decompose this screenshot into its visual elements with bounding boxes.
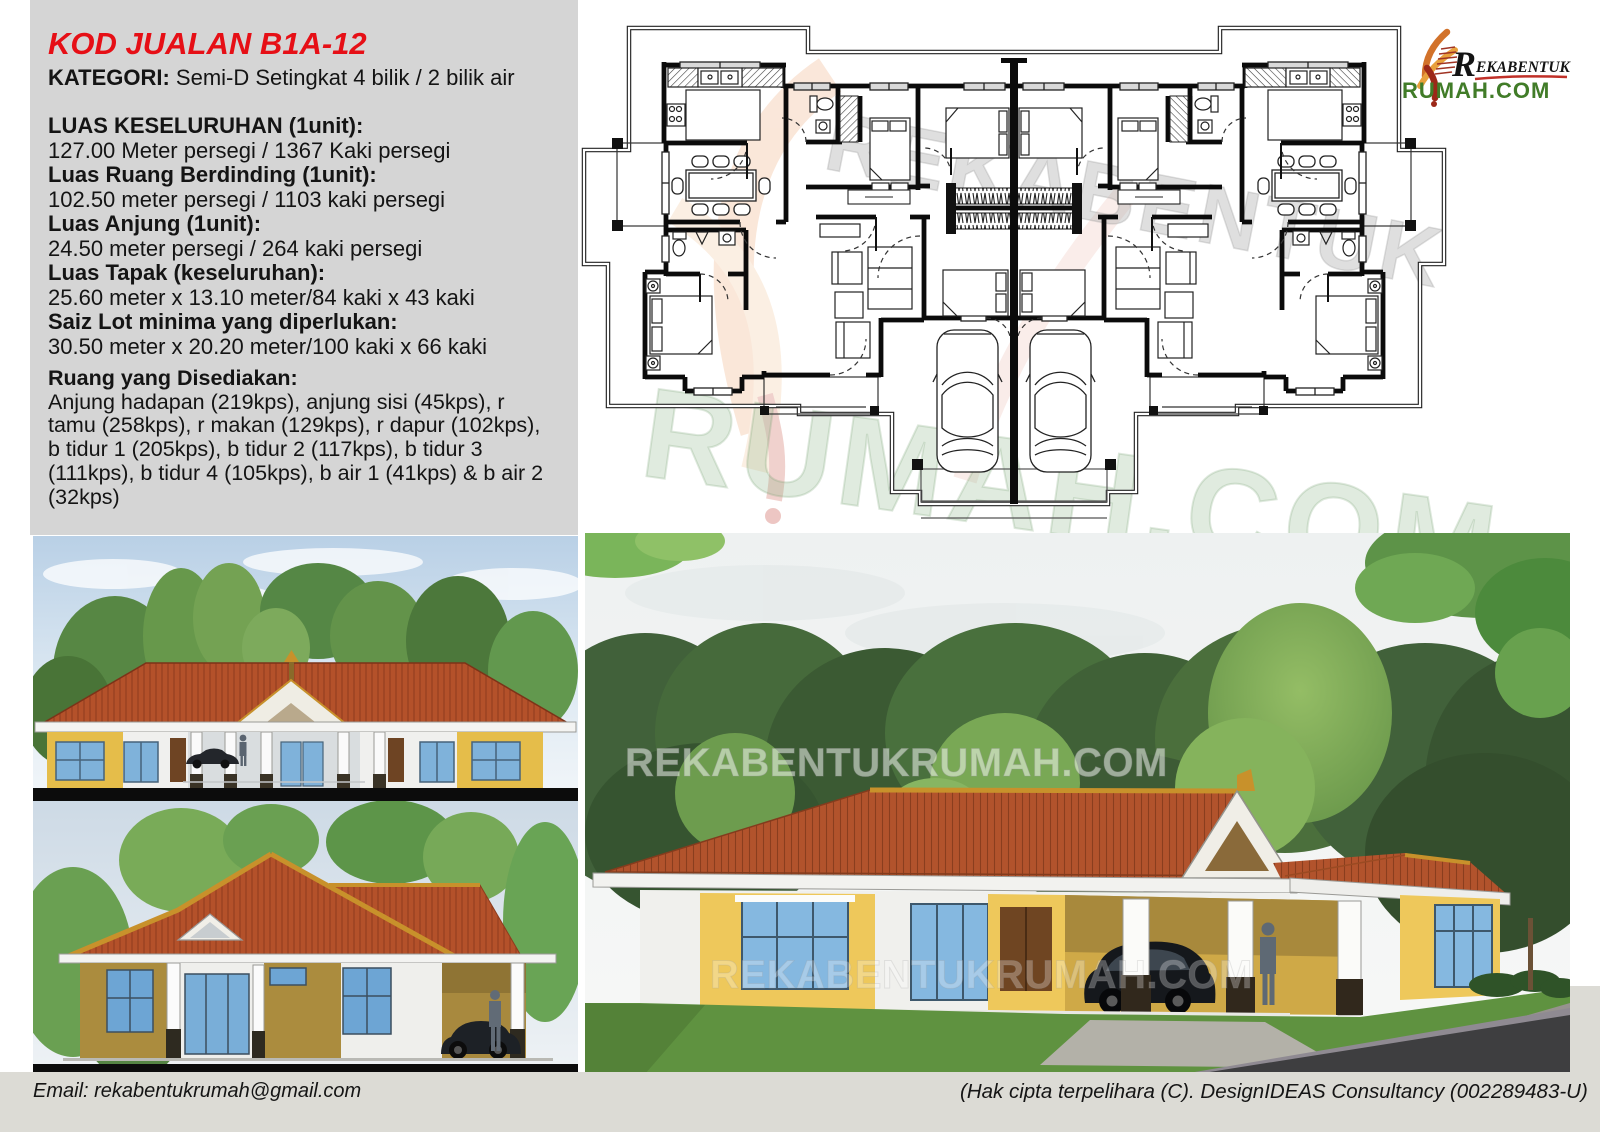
svg-text:REKABENTUKRUMAH.COM: REKABENTUKRUMAH.COM	[625, 741, 1168, 785]
svg-text:REKABENTUKRUMAH.COM: REKABENTUKRUMAH.COM	[710, 953, 1253, 997]
svg-text:EKABENTUK: EKABENTUK	[1475, 59, 1572, 76]
svg-text:RUMAH.COM: RUMAH.COM	[1402, 78, 1550, 103]
